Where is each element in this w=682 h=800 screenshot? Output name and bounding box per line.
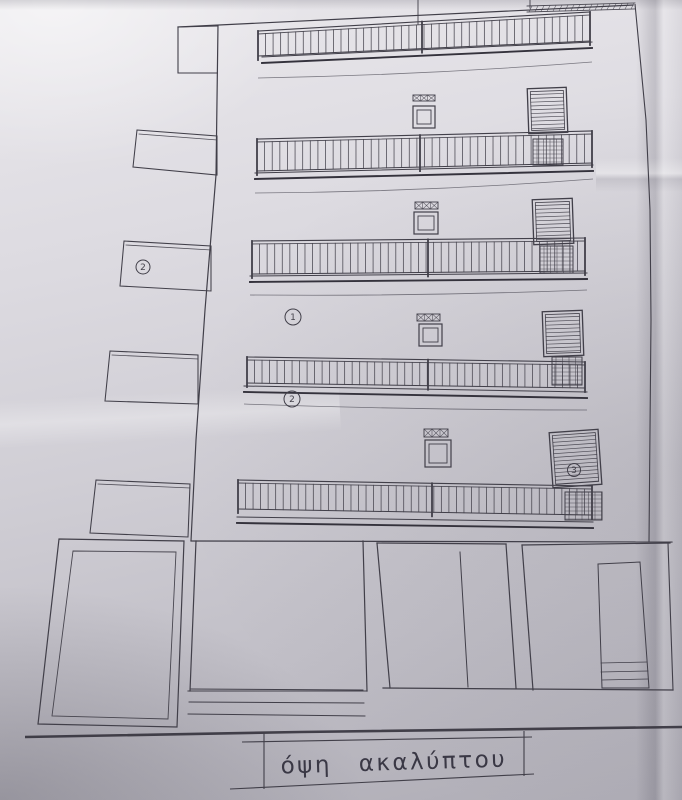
floor-3	[105, 310, 587, 410]
square-window	[414, 212, 438, 234]
balcony-slab	[250, 273, 587, 282]
shop-opening-right	[522, 543, 673, 690]
floor-5	[133, 87, 593, 193]
louvered-shutter	[527, 87, 568, 133]
shutter-lower-grid	[540, 246, 573, 273]
square-window	[419, 324, 442, 346]
ground-floor	[25, 539, 682, 737]
floor-label-text: 3	[571, 466, 577, 476]
shop-opening-left	[377, 543, 673, 690]
central-opening	[188, 541, 367, 691]
side-balcony-slab	[120, 241, 211, 291]
ground-line	[25, 727, 682, 737]
shutter-lower-grid	[565, 492, 602, 520]
side-balcony-slab	[105, 351, 198, 404]
side-balcony-slab	[90, 480, 190, 537]
shutter-lower-grid	[533, 139, 563, 165]
scanned-drawing-page: 2123 όψη ακαλύπτου	[0, 0, 682, 800]
balcony-railing	[258, 12, 590, 60]
floor-label-text: 1	[290, 313, 296, 323]
louvered-shutter	[549, 429, 602, 487]
balcony-railing	[238, 480, 592, 519]
square-window	[425, 440, 451, 467]
side-balcony-slab	[133, 130, 217, 175]
square-window	[413, 106, 435, 128]
transom-window	[417, 314, 440, 321]
floor-label-facade-floor3: 1	[285, 309, 301, 325]
transom-window	[413, 95, 435, 101]
floor-2	[90, 429, 602, 537]
transom-window	[424, 429, 448, 437]
title-box: όψη ακαλύπτου	[230, 731, 534, 789]
transom-window	[415, 202, 438, 209]
balcony-slab	[237, 517, 593, 528]
ground-door	[598, 562, 649, 688]
roof-balcony	[258, 12, 592, 78]
louvered-shutter	[542, 310, 584, 356]
floor-label-text: 2	[289, 395, 295, 405]
floor-label-door-floor1: 3	[568, 464, 581, 477]
floor-label-left-balcony-floor4: 2	[136, 260, 150, 274]
floor-4	[120, 198, 587, 295]
floor-label-text: 2	[140, 263, 146, 273]
balcony-railing	[257, 131, 592, 175]
entry-steps	[188, 689, 365, 716]
balcony-slab	[262, 42, 592, 63]
building-elevation: 2123	[25, 0, 682, 737]
left-annex-box	[38, 539, 184, 727]
elevation-line-drawing: 2123 όψη ακαλύπτου	[0, 0, 682, 800]
drawing-title: όψη ακαλύπτου	[280, 746, 507, 779]
